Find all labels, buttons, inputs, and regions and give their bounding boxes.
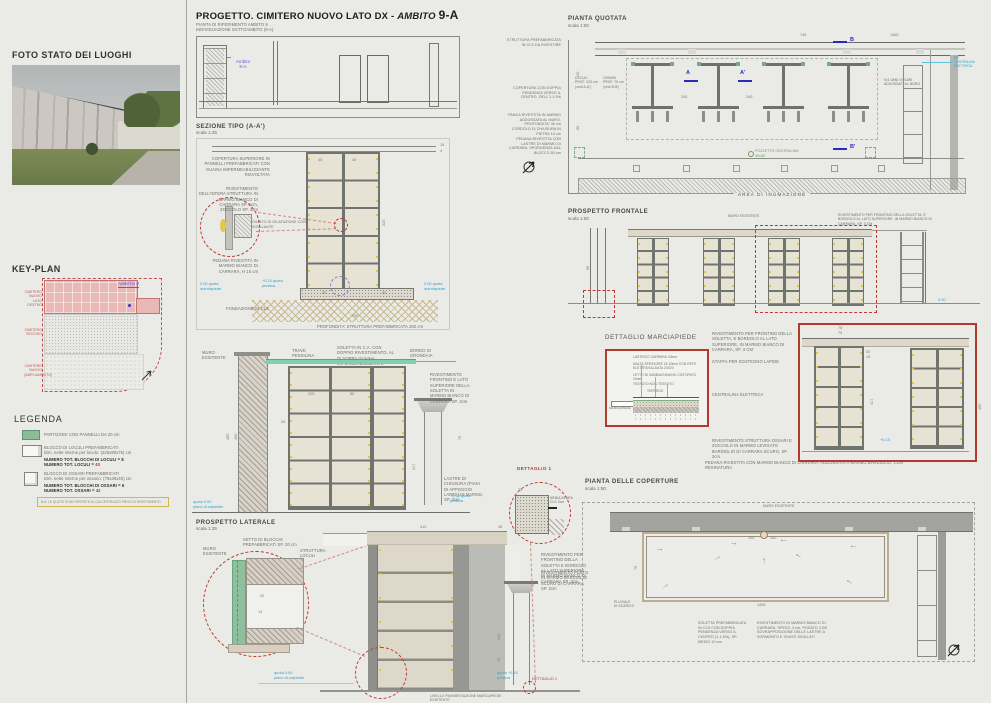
laterale-detail-hatch-bottom — [246, 628, 304, 644]
quotata-wall-notch2 — [688, 49, 696, 54]
frontale-title: PROSPETTO FRONTALE — [568, 208, 648, 215]
laterale-dim-20: 20 — [260, 594, 264, 598]
section-marker-B: B — [850, 37, 854, 43]
coperture-lbl-muro: MURO ESISTENTE — [763, 504, 803, 508]
slope-arrow-icon: → — [758, 557, 768, 566]
sezione-ann-giunto: GIUNTO DI DILATAZIONE CON SIGILLANTE — [252, 220, 308, 229]
quotata-inumazione-strip: AREA DI INUMAZIONE — [578, 178, 966, 194]
quotata-unit-2 — [698, 63, 739, 127]
dettaglio1-hatch — [548, 519, 564, 535]
quotata-lbl-loculi: LOCULI PROF. 225 cm (vedi A-A') — [575, 76, 601, 89]
quotata-scale: scala 1:50 — [568, 23, 589, 28]
slope-arrow-icon: → — [729, 537, 738, 547]
sezioneB-ann-riv: RIVESTIMENTO FRONTINO E LATO SUPERIORE D… — [430, 372, 470, 404]
coperture-dim-100b: 100 — [770, 536, 776, 540]
legend-heading: LEGENDA — [14, 414, 63, 424]
frontale-ossari-ladder — [900, 232, 924, 303]
marciapiede-l1: LASTRICO CARRARA 20mm — [633, 355, 701, 359]
quotata-ann1: STRUTTURA PREFABBRICATA IN CLS DA RIVEST… — [506, 38, 561, 47]
quotata-lbl-rif: RIF. CENTRALINA ELETTRICA — [954, 57, 975, 69]
riferimento-loculi-strip — [203, 45, 227, 109]
coperture-dim-100a: 100 — [748, 536, 754, 540]
page-title: PROGETTO. CIMITERO NUOVO LATO DX - AMBIT… — [196, 8, 459, 22]
legend-item3-tot2-value: 42 — [96, 488, 101, 493]
frontale-block-1 — [637, 238, 669, 306]
quotata-unit-4 — [828, 63, 869, 127]
laterale-ann-setto: SETTO DI BLOCCHI PREFABBRICATI SP. 20 cm — [243, 537, 299, 548]
laterale-right-pier — [453, 545, 469, 690]
keyplan-new-cemetery — [44, 354, 144, 390]
section-line-A2 — [738, 80, 752, 82]
sezioneB-dim-225: 225 — [308, 392, 314, 396]
sezioneB-dim-20: 20 — [281, 420, 285, 424]
sezioneB-dim-75: 75 — [458, 436, 462, 440]
dettaglio1-title: DETTAGLIO 1 — [517, 466, 551, 471]
ossari-dim-78: 78 — [838, 326, 842, 330]
quotata-wall-band — [595, 42, 965, 56]
marciapiede-l3: LETTO DI SABBIA/GHIAINO COSTIPATO 20mm — [633, 373, 701, 381]
sezioneB-loculi-block — [288, 366, 372, 510]
dettaglio1-dim-75: 75 — [518, 488, 522, 492]
site-photo — [12, 65, 180, 185]
coperture-dim-1495: 1495 — [757, 603, 765, 607]
legend-item2-tot2-text: NUMERO TOT. LOCULI = — [44, 462, 95, 467]
riferimento-block2 — [367, 55, 389, 103]
panel-divider — [186, 0, 187, 703]
frontale-block-2 — [703, 238, 735, 306]
marciapiede-box: LASTRICO CARRARA 20mm MALTA SPESSORE 15-… — [605, 349, 709, 427]
section-marker-A2-label: A' — [740, 70, 745, 76]
dettaglio1-concrete — [515, 495, 549, 534]
ossari-dim-15: 15 — [866, 355, 870, 359]
ossari-dim-75: 75 — [838, 331, 842, 335]
sezione-dim-60b: 60 — [382, 291, 386, 295]
sezioneB-dim-400: 400 — [234, 434, 238, 440]
page-title-prefix: PROGETTO. CIMITERO NUOVO LATO DX - — [196, 11, 397, 22]
section-line-B2 — [833, 148, 847, 150]
laterale-capital-plate — [504, 581, 538, 584]
sezione-foundation — [300, 288, 414, 300]
ossari-block-1 — [814, 346, 864, 450]
frontale-quota-0: 0.00 — [938, 298, 946, 303]
riferimento-leader — [227, 57, 231, 58]
laterale-detail-circle: 20 14 — [203, 551, 309, 657]
laterale-quota-cal: quota 0.00 piano di calpestio — [274, 671, 304, 680]
coperture-lbl-pluviale: PLUVIALE DI SCARICO — [614, 600, 638, 609]
laterale-cornice-left — [323, 533, 367, 546]
legend-item3-tot2: NUMERO TOT. OSSARI = 42 — [44, 488, 178, 493]
sezione-ground-hatch — [252, 300, 438, 322]
laterale-detail-hatch-top — [246, 558, 304, 586]
frontale-detail-rect-small — [583, 290, 615, 318]
legend-item3-tot2-text: NUMERO TOT. OSSARI = — [44, 488, 96, 493]
dettaglio1-tick — [548, 507, 557, 509]
riferimento-edge-strip — [429, 43, 439, 107]
sezione-dim-45a: 45 — [318, 158, 322, 162]
legend-item3-sub: Dim. nette interne per ossario: (75x30x4… — [44, 476, 178, 481]
sezioneB-ossari-block — [372, 366, 406, 510]
sezione-dim-250: 250 — [352, 314, 358, 318]
section-line-B — [833, 41, 847, 43]
sezioneB-dim-417: 417 — [412, 464, 416, 470]
keyplan-heading: KEY-PLAN — [12, 264, 61, 274]
sezione-quota-left: 0.00 quota marciapiede — [200, 282, 221, 291]
section-marker-A: A — [686, 70, 690, 76]
quotata-area-label: AREA DI INUMAZIONE — [734, 193, 810, 198]
laterale-title: PROSPETTO LATERALE — [196, 519, 276, 526]
ossari-block-2 — [910, 348, 964, 449]
coperture-ann2: RIVESTIMENTO IN MARMO BIANCO DI CARRARA,… — [757, 621, 833, 640]
sezione-ann-roof: COPERTURA SUPERIORE IN PANNELLI PREFABBR… — [198, 156, 270, 177]
laterale-scale: scala 1:25 — [196, 526, 217, 531]
sezioneB-ann-trave: TRAVE PENSILINA — [292, 348, 326, 359]
sezioneB-ann-muro: MURO ESISTENTE — [202, 350, 236, 361]
sezione-detail-hatch — [234, 214, 252, 238]
ossari-detail-box: 78 75 52 15 417 +0.15 — [798, 323, 977, 462]
quotata-wall-notch3 — [843, 49, 851, 54]
keyplan-area3-label: CIMITERO NUOVO (AMPLIAMENTO) — [24, 364, 42, 377]
marciapiede-lbl: MARCIAPIEDE — [609, 407, 635, 411]
keyplan-area2-label: CIMITERO VECCHIO — [24, 328, 42, 337]
laterale-dim-45: 45 — [498, 525, 502, 529]
frontale-ann-muro: MURO ESISTENTE — [728, 214, 768, 218]
ossari-dim-450: 450 — [978, 404, 982, 410]
riferimento-ambito-label: Ambito 9-A — [231, 59, 255, 69]
section-marker-B2-label: B' — [850, 144, 855, 150]
slope-arrow-icon: → — [779, 537, 788, 547]
keyplan-ambito-label: AMBITO 9 — [118, 281, 139, 288]
legend-note: N.B. LE QUOTE SONO RIFERITE AL CALCESTRU… — [37, 497, 169, 507]
page-title-ambito: AMBITO — [397, 11, 438, 22]
laterale-quota-ped: quota +0.15 pedana — [497, 671, 518, 680]
sezione-ann-prof: PROFONDITA' STRUTTURA PREFABBRICATA 250 … — [300, 324, 440, 329]
laterale-detail-void — [246, 584, 304, 630]
photo-wall-stains — [12, 79, 128, 157]
quotata-sq5 — [831, 165, 838, 172]
sezioneB-dim-450: 450 — [226, 434, 230, 440]
quotata-ann5: PEDANA RIVESTITA CON LASTRE DI MARMO DI … — [506, 137, 561, 156]
keyplan-ambito-area-ext — [136, 298, 160, 314]
photo-heading: FOTO STATO DEI LUOGHI — [12, 50, 132, 60]
sezione-scale: scala 1:25 — [196, 130, 217, 135]
quotata-unit-3 — [763, 63, 804, 127]
section-marker-A2: A' — [740, 70, 745, 76]
sezione-dim-15: 15 — [440, 143, 444, 147]
sezione-title: SEZIONE TIPO (A-A') — [196, 123, 265, 130]
sezioneB-ann-bordo: BORDO DI GRONDAIA — [410, 348, 444, 359]
quotata-lbl-ossari: OSSARI PROF. 75 cm (vedi B-B') — [603, 76, 629, 89]
ossari-dim-52: 52 — [866, 350, 870, 354]
slope-arrow-icon: → — [655, 543, 664, 553]
quotata-right-band — [950, 55, 958, 190]
photo-wall — [12, 79, 128, 157]
photo-trees — [124, 91, 180, 127]
marciapiede-l2: MALTA SPESSORE 15-20mm CON RETE ELETTROS… — [633, 362, 701, 370]
laterale-dim-75: 75 — [497, 658, 501, 662]
quotata-wall-notch1 — [618, 49, 626, 54]
laterale-caption: LIVELLO PAVIMENTAZIONE MARCIAPIEDE ESIST… — [430, 694, 520, 703]
quotata-dim-240a: 240 — [681, 95, 687, 99]
quotata-pozzetto-icon — [748, 151, 754, 157]
frontale-dim-90: 90 — [586, 266, 590, 270]
sezioneB-slab-green — [266, 359, 416, 364]
laterale-detail-green-panel — [232, 560, 246, 648]
laterale-detail-base — [228, 644, 290, 653]
quotata-dim-1465: 1465 — [890, 33, 898, 37]
section-marker-B-label: B — [850, 37, 854, 43]
marciapiede-ann3: CENTRALINA ELETTRICA — [712, 392, 792, 397]
sezioneB-column-shaft — [424, 412, 442, 505]
sezioneB-dim-80: 80 — [350, 392, 354, 396]
laterale-dim-14: 14 — [258, 610, 262, 614]
quotata-right-ladder — [903, 65, 923, 164]
page-title-code: 9-A — [439, 8, 459, 22]
legend-item1-label: PARTIZIONI CON PANNELLI DA 20 cm — [44, 432, 174, 437]
sezione-detail-sealant — [220, 219, 226, 232]
quotata-sq1 — [633, 165, 640, 172]
quotata-lbl-pozzetto: POZZETTO CENTRALINA 30x30 — [755, 149, 799, 158]
quotata-sq2 — [683, 165, 690, 172]
coperture-dim-75: 75 — [634, 566, 638, 570]
sezione-quota-right: 0.00 quota marciapiede — [424, 282, 445, 291]
coperture-north-arrow-icon — [945, 641, 963, 659]
sezione-dim-225: 225 — [382, 220, 386, 226]
slope-arrow-icon: → — [849, 543, 858, 553]
coperture-ann1: SOLETTA PREFABBRICATA IN CLS CON DOPPIA … — [698, 621, 750, 644]
coperture-right-ladder — [917, 535, 937, 657]
coperture-wall-band — [610, 512, 973, 532]
quotata-ann4: CORDOLO DI CHIUSURA IN PIETRA 10 cm — [506, 127, 561, 136]
quotata-ann3: PANCA RIVESTITA IN MARMO ADDOSSATA AL MU… — [506, 113, 561, 127]
section-marker-A-label: A — [686, 70, 690, 76]
quotata-ann2: COPERTURA CON DOPPIA PENDENZA VERSO IL C… — [506, 86, 561, 100]
legend-item2-sub: Dim. nette interne per loculo: (225x80x7… — [44, 450, 178, 455]
sezione-quota-pedana: +0.15 quota pedana — [262, 279, 283, 288]
quotata-wall-notch4 — [916, 49, 924, 54]
quotata-sq4 — [781, 165, 788, 172]
keyplan-north-arrow-icon — [140, 368, 154, 382]
coperture-drain — [760, 531, 768, 539]
sezione-ann-fond: FONDAZIONE IN CLS — [226, 306, 276, 311]
laterale-dim-410: 410 — [420, 525, 426, 529]
sezione-purple-circle — [330, 276, 350, 296]
marciapiede-ann2: STAFFA PER SOSTEGNO LAPIDE — [712, 359, 792, 364]
drawing-sheet: FOTO STATO DEI LUOGHI KEY-PLAN AMBITO 9 … — [0, 0, 991, 703]
marciapiede-ann1: RIVESTIMENTO PER FRONTINO DELLA SOLETTA,… — [712, 331, 804, 352]
marciapiede-soil — [633, 413, 699, 421]
legend-item2-tot2: NUMERO TOT. LOCULI = 40 — [44, 462, 178, 467]
sezioneB-quota-cal: quota 0.00 piano di calpestio — [193, 500, 223, 509]
quotata-unit-1 — [632, 63, 673, 127]
quotata-green-box-right — [865, 147, 876, 158]
keyplan-area1-label: CIMITERO NUOVO LATO DESTRO — [24, 290, 42, 308]
sezione-dim-45b: 45 — [352, 158, 356, 162]
laterale-cornice — [367, 531, 507, 546]
sezione-ann-riv: RIVESTIMENTO DELL'INTERA STRUTTURA IN MA… — [198, 186, 258, 213]
ossari-dim-417: 417 — [870, 399, 874, 405]
quotata-north-arrow-icon — [520, 158, 538, 176]
frontale-detail-rect-big — [755, 225, 877, 313]
quotata-sq6 — [878, 165, 885, 172]
photo-shrub — [84, 139, 100, 157]
marciapiede-ann4: RIVESTIMENTO STRUTTURA OSSARI E ZOCCOLO … — [712, 438, 796, 459]
dettaglio1-label: NEBULATURA CLS 2cm — [550, 496, 570, 505]
legend-item2-tot2-value: 40 — [95, 462, 100, 467]
riferimento-plan: Ambito 9-A — [196, 36, 460, 118]
legend-swatch-ossari — [24, 472, 38, 486]
quotata-dim-240b: 240 — [746, 95, 752, 99]
quotata-dim-90: 90 — [576, 126, 580, 130]
laterale-wall-return — [469, 545, 505, 690]
section-line-A — [684, 80, 698, 82]
ossari-quota: +0.15 — [880, 438, 890, 443]
sezioneB-quota-ped: +0.15 quota pedana — [450, 494, 471, 503]
sezioneB-existing-wall — [238, 356, 268, 512]
frontale-scale: scala 1:50 — [568, 216, 589, 221]
quotata-sq3 — [733, 165, 740, 172]
riferimento-subtitle: INDIVIDUAZIONE SOTTOAMBITO (9-A) — [196, 27, 396, 32]
coperture-title: PIANTA DELLE COPERTURE — [585, 478, 679, 485]
legend-swatch-loculi — [22, 445, 42, 457]
legend-swatch-green — [22, 430, 40, 440]
coperture-scale: scala 1:50 — [585, 486, 606, 491]
laterale-dim-410v: 410 — [497, 634, 501, 640]
quotata-title: PIANTA QUOTATA — [568, 15, 627, 22]
section-marker-B2: B' — [850, 144, 855, 150]
dettaglio1-circle: 75 — [509, 482, 571, 544]
laterale-ann-muro: MURO ESISTENTE — [203, 546, 233, 557]
marciapiede-title: DETTAGLIO MARCIAPIEDE — [605, 334, 697, 341]
keyplan: AMBITO 9 CIMITERO NUOVO LATO DESTRO CIMI… — [24, 276, 174, 406]
keyplan-marker-dot — [128, 304, 131, 307]
sezione-ann-pedana: PEDANA RIVESTITA IN MARMO BIANCO DI CARR… — [198, 258, 258, 274]
sezione-dim-60a: 60 — [322, 291, 326, 295]
sezione-dim-4: 4 — [440, 149, 442, 153]
sezione-joint-circle — [334, 218, 348, 232]
riferimento-block1 — [339, 55, 361, 103]
sezione-detail-panel — [225, 206, 233, 250]
quotata-dim-745: 745 — [800, 33, 806, 37]
quotata-green-box-left — [574, 147, 585, 158]
laterale-detail-centerline — [237, 560, 238, 646]
riferimento-loculi-hatch — [206, 48, 224, 106]
keyplan-old-cemetery — [44, 314, 138, 354]
